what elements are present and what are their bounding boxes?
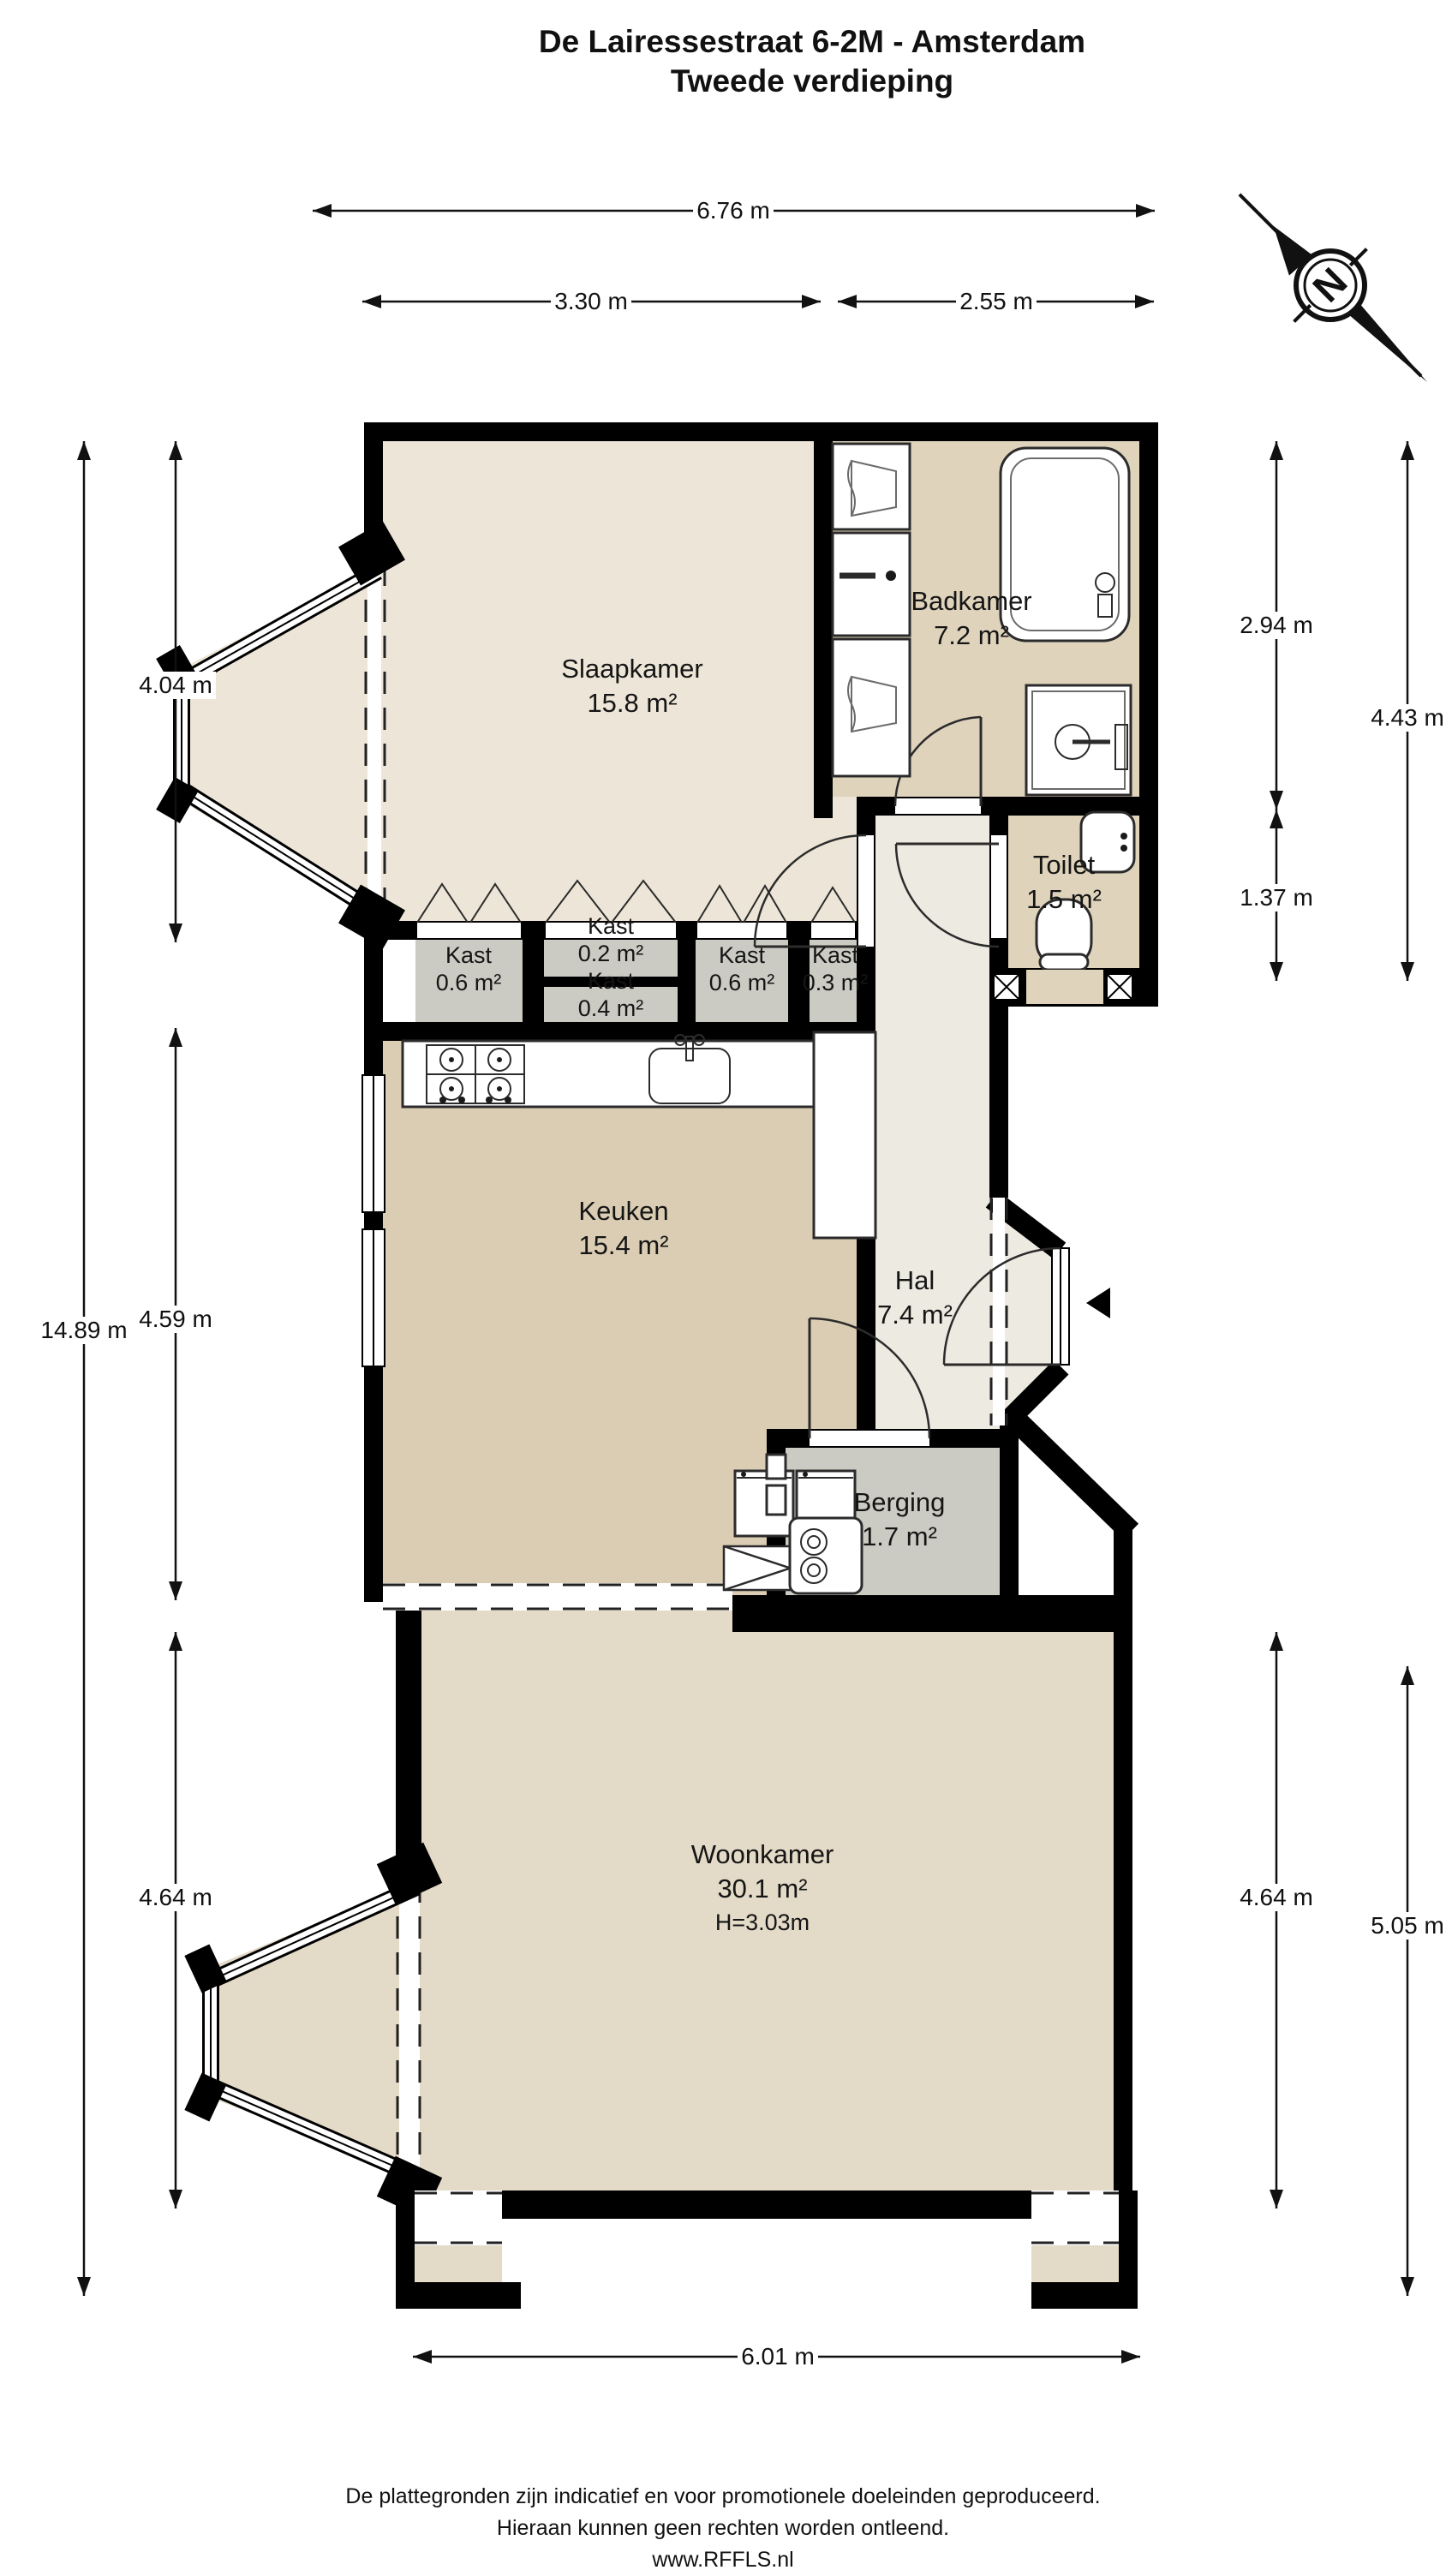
towel-panel bbox=[833, 639, 910, 776]
wall-woonkamer-left-a bbox=[396, 1595, 421, 1880]
shaft-slab bbox=[1026, 970, 1103, 1004]
badkamer-vanity bbox=[833, 444, 910, 776]
wall-kast-divider-1 bbox=[523, 921, 544, 1022]
door-gap bbox=[991, 835, 1007, 938]
room-area: 1.7 m² bbox=[862, 1521, 937, 1551]
disclaimer-line-1: De plattegronden zijn indicatief en voor… bbox=[345, 2481, 1100, 2513]
wall-woonkamer-top bbox=[732, 1595, 1132, 1632]
dimension-arrowhead bbox=[1270, 2190, 1283, 2208]
dimension-3-30-m: 3.30 m bbox=[362, 288, 821, 315]
room-area: 15.4 m² bbox=[578, 1230, 668, 1260]
projection-strip bbox=[993, 1198, 1005, 1425]
room-name: Toilet bbox=[1033, 850, 1096, 880]
dimension-label: 6.01 m bbox=[741, 2343, 815, 2370]
niche-floor bbox=[415, 2245, 502, 2282]
wall-top bbox=[364, 422, 1158, 441]
room-area: 30.1 m² bbox=[717, 1874, 807, 1904]
dimension-arrowhead bbox=[1401, 1666, 1414, 1685]
niche-opening bbox=[415, 2190, 502, 2245]
sink-tap-dot bbox=[1120, 833, 1127, 840]
room-area: 0.2 m² bbox=[578, 941, 644, 966]
wall-bottom-left-band bbox=[396, 2282, 521, 2309]
room-name: Slaapkamer bbox=[561, 654, 702, 684]
dimension-4-64-m: 4.64 m bbox=[135, 1632, 216, 2208]
dimension-arrowhead bbox=[1401, 2277, 1414, 2296]
disclaimer-line-2: Hieraan kunnen geen rechten worden ontle… bbox=[345, 2513, 1100, 2544]
wall-woonkamer-right-a bbox=[1114, 1521, 1132, 2219]
opening-keuken-woonkamer bbox=[383, 1583, 732, 1611]
dimension-arrowhead bbox=[838, 295, 857, 308]
wall-bottom-right-band bbox=[1031, 2282, 1138, 2309]
dimension-4-04-m: 4.04 m bbox=[135, 441, 216, 942]
dimension-arrowhead bbox=[1401, 441, 1414, 460]
dimension-arrowhead bbox=[1401, 962, 1414, 981]
room-name: Kast bbox=[588, 913, 635, 939]
disclaimer-url: www.RFFLS.nl bbox=[345, 2544, 1100, 2576]
dimension-arrowhead bbox=[169, 2190, 182, 2208]
door-gap bbox=[895, 798, 981, 814]
niche-floor bbox=[1031, 2245, 1119, 2282]
room-area: 0.4 m² bbox=[578, 995, 644, 1021]
gas-hob bbox=[427, 1045, 524, 1103]
room-area: 0.6 m² bbox=[436, 970, 502, 995]
opening-strip bbox=[383, 1583, 732, 1611]
dimension-5-05-m: 5.05 m bbox=[1367, 1666, 1446, 2296]
shower bbox=[1026, 685, 1131, 795]
room-name: Hal bbox=[895, 1265, 935, 1295]
dimension-arrowhead bbox=[1270, 1632, 1283, 1651]
wall-fixture bbox=[767, 1485, 786, 1515]
room-height: H=3.03m bbox=[715, 1910, 810, 1935]
room-name: Kast bbox=[445, 942, 493, 968]
dimension-arrowhead bbox=[77, 2277, 91, 2296]
dimension-arrowhead bbox=[169, 923, 182, 942]
door-gap bbox=[697, 923, 786, 938]
room-area: 0.6 m² bbox=[709, 970, 775, 995]
dimension-6-76-m: 6.76 m bbox=[313, 197, 1155, 224]
dimension-label: 2.55 m bbox=[959, 288, 1033, 314]
dimension-arrowhead bbox=[169, 1632, 182, 1651]
door-gap bbox=[858, 835, 874, 947]
dimension-arrowhead bbox=[313, 204, 332, 218]
room-area: 7.4 m² bbox=[877, 1300, 953, 1330]
drain-icon bbox=[886, 571, 896, 581]
bay-opening-strip bbox=[399, 1880, 420, 2180]
dimension-label: 4.59 m bbox=[139, 1306, 212, 1332]
dimension-arrowhead bbox=[169, 1028, 182, 1047]
balcony-niche-right bbox=[1031, 2190, 1119, 2282]
dimension-label: 4.43 m bbox=[1371, 704, 1444, 731]
dimension-arrowhead bbox=[1270, 810, 1283, 828]
wall-fixture bbox=[767, 1455, 786, 1479]
wall-kast-divider-2 bbox=[678, 921, 696, 1022]
wall-slaapkamer-badkamer bbox=[814, 422, 833, 818]
floor-slaapkamer-bay bbox=[174, 564, 383, 921]
dimension-arrowhead bbox=[169, 441, 182, 460]
wall-berging-right bbox=[1000, 1409, 1019, 1595]
dimension-4-64-m: 4.64 m bbox=[1236, 1632, 1317, 2208]
bay-opening-strip bbox=[367, 564, 381, 921]
dimension-arrowhead bbox=[362, 295, 381, 308]
dimension-label: 6.76 m bbox=[696, 197, 770, 224]
toilet-seat bbox=[1040, 954, 1088, 970]
dimension-arrowhead bbox=[1270, 962, 1283, 981]
dimension-label: 5.05 m bbox=[1371, 1912, 1444, 1939]
compass-south-spike bbox=[1349, 304, 1433, 388]
door-gap bbox=[810, 1431, 929, 1446]
room-name: Kast bbox=[588, 968, 635, 994]
dimension-arrowhead bbox=[413, 2350, 432, 2364]
dimension-label: 4.64 m bbox=[139, 1884, 212, 1910]
dimension-14-89-m: 14.89 m bbox=[38, 441, 130, 2296]
vent-box bbox=[994, 974, 1019, 1000]
entrance-arrow-icon bbox=[1086, 1288, 1110, 1318]
dimension-arrowhead bbox=[1270, 791, 1283, 810]
dimension-label: 14.89 m bbox=[40, 1317, 127, 1343]
dimension-arrowhead bbox=[1121, 2350, 1140, 2364]
room-name: Keuken bbox=[578, 1196, 668, 1226]
dimension-label: 4.64 m bbox=[1240, 1884, 1313, 1910]
balcony-niche-left bbox=[415, 2190, 502, 2282]
dimension-label: 3.30 m bbox=[554, 288, 628, 314]
boiler bbox=[790, 1518, 862, 1593]
towel-panel bbox=[833, 444, 910, 529]
compass-rose: N bbox=[1204, 158, 1446, 419]
wall-right-upper bbox=[1139, 422, 1158, 1007]
dimension-1-37-m: 1.37 m bbox=[1236, 810, 1317, 981]
dimension-arrowhead bbox=[169, 1581, 182, 1600]
vent-box bbox=[1107, 974, 1132, 1000]
dimension-arrowhead bbox=[802, 295, 821, 308]
room-name: Kast bbox=[812, 942, 859, 968]
sink-tap-dot bbox=[1120, 845, 1127, 852]
disclaimer: De plattegronden zijn indicatief en voor… bbox=[345, 2481, 1100, 2576]
washbasin bbox=[833, 533, 910, 636]
dimension-arrowhead bbox=[1270, 441, 1283, 460]
dimension-2-55-m: 2.55 m bbox=[838, 288, 1154, 315]
dimension-label: 2.94 m bbox=[1240, 612, 1313, 638]
room-name: Badkamer bbox=[911, 586, 1031, 616]
dimension-arrowhead bbox=[77, 441, 91, 460]
wall-hal-right bbox=[989, 1007, 1008, 1198]
dimension-label: 1.37 m bbox=[1240, 884, 1313, 911]
dimension-4-43-m: 4.43 m bbox=[1367, 441, 1446, 981]
wall-kast-bottom bbox=[364, 1022, 865, 1041]
wall-woonkamer-bottom bbox=[502, 2190, 1031, 2219]
room-name: Woonkamer bbox=[691, 1839, 834, 1869]
room-name: Berging bbox=[854, 1487, 946, 1517]
room-area: 0.3 m² bbox=[803, 970, 869, 995]
dimension-arrowhead bbox=[1135, 295, 1154, 308]
floorplan: N Slaapkamer15.8 m²Badkamer7.2 m²Toilet1… bbox=[0, 0, 1446, 2570]
dimension-6-01-m: 6.01 m bbox=[413, 2343, 1140, 2370]
kitchen-tall-cabinet bbox=[814, 1032, 875, 1238]
room-area: 1.5 m² bbox=[1026, 884, 1102, 914]
dimension-label: 4.04 m bbox=[139, 672, 212, 698]
door-gap bbox=[811, 923, 855, 938]
wall-exterior-diagonal bbox=[1007, 1412, 1131, 1532]
dimension-arrowhead bbox=[1136, 204, 1155, 218]
dimension-4-59-m: 4.59 m bbox=[135, 1028, 216, 1600]
dimension-2-94-m: 2.94 m bbox=[1236, 441, 1317, 810]
room-area: 15.8 m² bbox=[587, 688, 677, 718]
room-name: Kast bbox=[719, 942, 766, 968]
room-area: 7.2 m² bbox=[934, 620, 1009, 650]
hal-overhead-projection bbox=[991, 1198, 1007, 1425]
door-gap bbox=[417, 923, 521, 938]
niche-opening bbox=[1031, 2190, 1119, 2245]
